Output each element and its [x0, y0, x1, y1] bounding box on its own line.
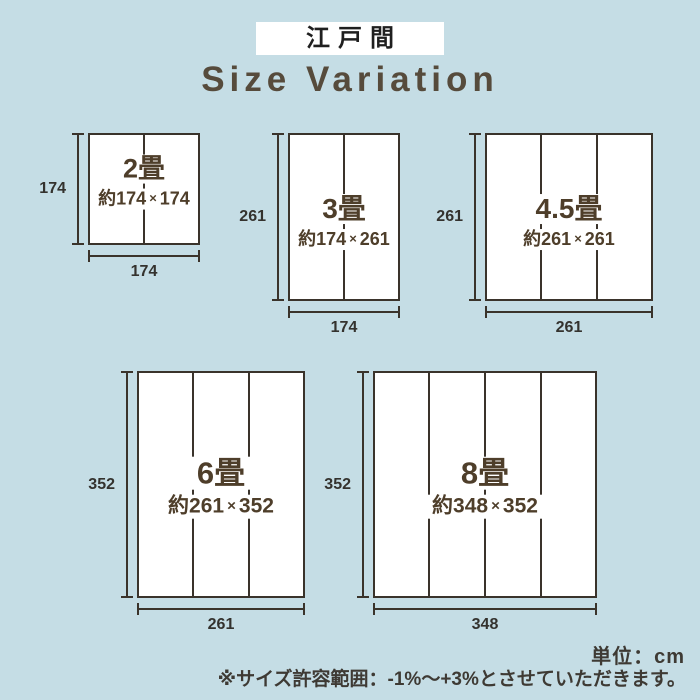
page-title: Size Variation: [0, 62, 700, 97]
mat-dims-label-2jo: 約174×174: [93, 189, 195, 210]
bottom-dim-line-3jo: [288, 306, 400, 318]
side-dim-line-6jo: [121, 371, 133, 598]
dims-label-part: ×: [224, 498, 239, 515]
dims-label-part: 261: [360, 229, 390, 250]
bottom-dim-line-2jo: [88, 250, 200, 262]
mat-label-3jo: 3畳約174×261: [293, 194, 395, 250]
side-dim-label-4_5jo: 261: [417, 207, 463, 226]
dims-label-part: 約348: [432, 495, 488, 519]
room-type-tag: 江戸間: [256, 22, 444, 55]
side-dim-line-8jo: [357, 371, 369, 598]
dims-label-part: 261: [585, 229, 615, 250]
dims-label-part: 約174: [98, 189, 146, 210]
mat-label-6jo: 6畳約261×352: [163, 456, 279, 519]
dims-label-part: 352: [503, 495, 538, 519]
mat-label-4_5jo: 4.5畳約261×261: [518, 194, 620, 250]
mat-dims-label-3jo: 約174×261: [293, 229, 395, 250]
dims-label-part: ×: [146, 192, 160, 207]
dims-label-part: ×: [571, 232, 585, 247]
tolerance-note: ※サイズ許容範囲：-1%〜+3%とさせていただきます。: [218, 664, 686, 691]
side-dim-line-4_5jo: [469, 133, 481, 301]
mat-size-label-4_5jo: 4.5畳: [528, 194, 611, 224]
bottom-dim-label-4_5jo: 261: [485, 318, 653, 337]
bottom-dim-label-6jo: 261: [137, 615, 305, 634]
mat-size-label-3jo: 3畳: [314, 194, 374, 224]
dims-label-part: 約174: [298, 229, 346, 250]
bottom-dim-label-3jo: 174: [288, 318, 400, 337]
bottom-dim-line-6jo: [137, 603, 305, 615]
room-type-tag-label: 江戸間: [298, 27, 402, 51]
side-dim-label-6jo: 352: [69, 475, 115, 494]
dims-label-part: ×: [346, 232, 360, 247]
dims-label-part: ×: [488, 498, 503, 515]
dims-label-part: 174: [160, 189, 190, 210]
dims-label-part: 352: [239, 495, 274, 519]
bottom-dim-label-8jo: 348: [373, 615, 597, 634]
size-variation-canvas: 江戸間 Size Variation 2畳約174×1741741743畳約17…: [0, 0, 700, 700]
side-dim-label-8jo: 352: [305, 475, 351, 494]
mat-dims-label-6jo: 約261×352: [163, 495, 279, 519]
bottom-dim-label-2jo: 174: [88, 262, 200, 281]
bottom-dim-line-8jo: [373, 603, 597, 615]
dims-label-part: 約261: [168, 495, 224, 519]
mat-label-8jo: 8畳約348×352: [427, 456, 543, 519]
bottom-dim-line-4_5jo: [485, 306, 653, 318]
mat-dims-label-8jo: 約348×352: [427, 495, 543, 519]
side-dim-line-2jo: [72, 133, 84, 245]
mat-label-2jo: 2畳約174×174: [93, 155, 195, 210]
mat-size-label-2jo: 2畳: [115, 155, 173, 184]
dims-label-part: 約261: [523, 229, 571, 250]
mat-dims-label-4_5jo: 約261×261: [518, 229, 620, 250]
side-dim-label-3jo: 261: [220, 207, 266, 226]
side-dim-line-3jo: [272, 133, 284, 301]
mat-size-label-8jo: 8畳: [453, 456, 517, 489]
side-dim-label-2jo: 174: [20, 179, 66, 198]
mat-size-label-6jo: 6畳: [189, 456, 253, 489]
